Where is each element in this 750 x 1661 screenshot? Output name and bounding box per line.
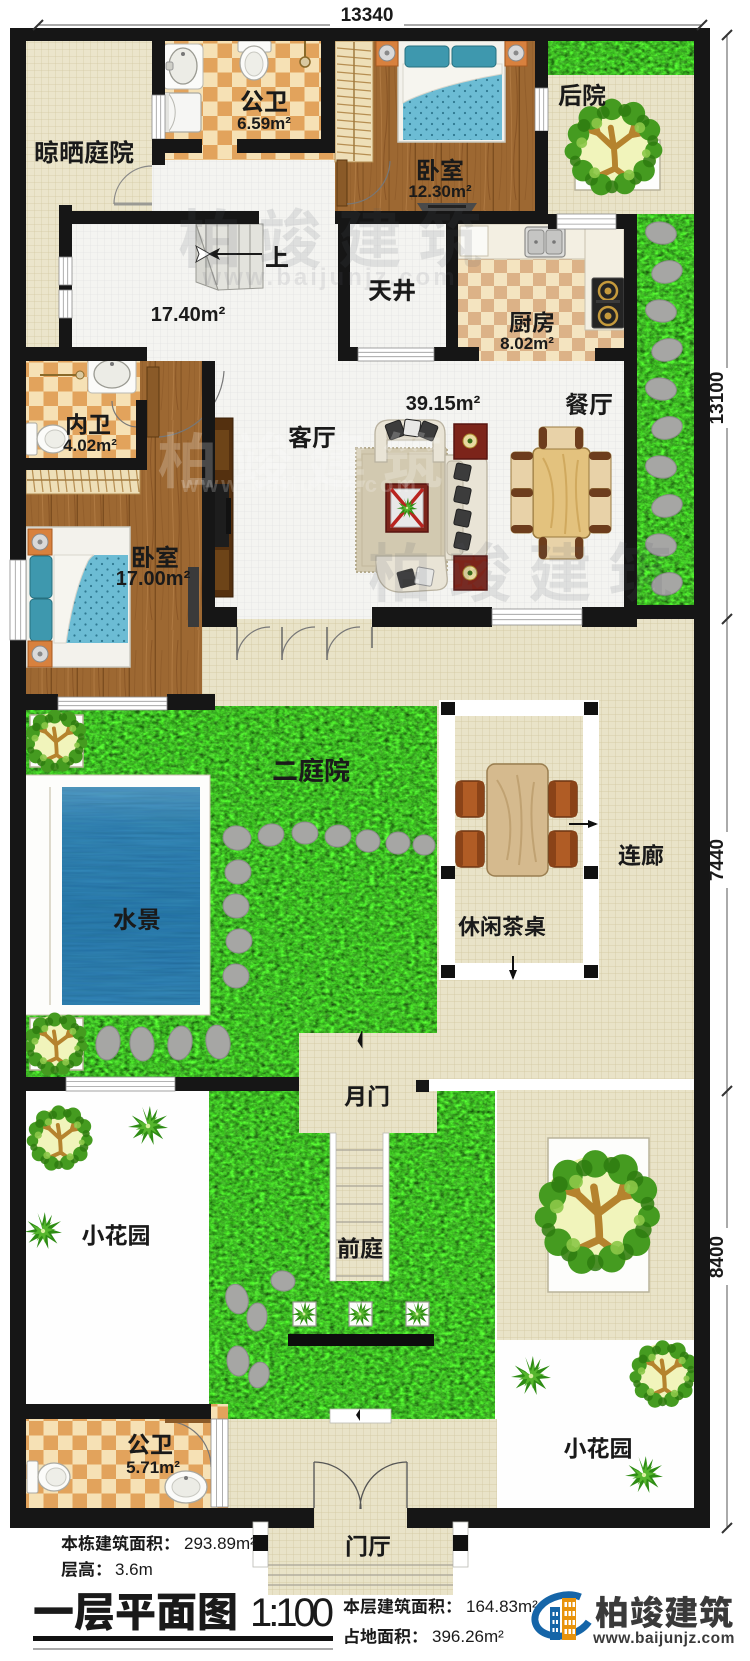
svg-text:5.71m²: 5.71m² [126, 1458, 180, 1477]
svg-text:4.02m²: 4.02m² [63, 436, 117, 455]
svg-text:1:100: 1:100 [250, 1591, 334, 1635]
svg-text:12.30m²: 12.30m² [408, 182, 472, 201]
svg-text:17.00m²: 17.00m² [116, 568, 191, 590]
svg-text:www.baijunjz.com: www.baijunjz.com [180, 472, 419, 497]
svg-text:www.baijunjz.com: www.baijunjz.com [201, 264, 457, 291]
svg-text:7440: 7440 [707, 839, 728, 881]
svg-text:13100: 13100 [707, 372, 728, 425]
svg-text:6.59m²: 6.59m² [237, 114, 291, 133]
svg-text:8400: 8400 [707, 1236, 728, 1278]
svg-text:8.02m²: 8.02m² [500, 334, 554, 353]
svg-text:39.15m²: 39.15m² [406, 393, 481, 415]
svg-text:17.40m²: 17.40m² [151, 304, 226, 326]
svg-text:396.26m²: 396.26m² [432, 1627, 504, 1646]
svg-text:293.89m²: 293.89m² [184, 1534, 256, 1553]
svg-text:www.baijunjz.com: www.baijunjz.com [592, 1630, 735, 1647]
svg-text:13340: 13340 [341, 5, 394, 26]
svg-text:3.6m: 3.6m [115, 1560, 153, 1579]
svg-text:164.83m²: 164.83m² [466, 1597, 538, 1616]
